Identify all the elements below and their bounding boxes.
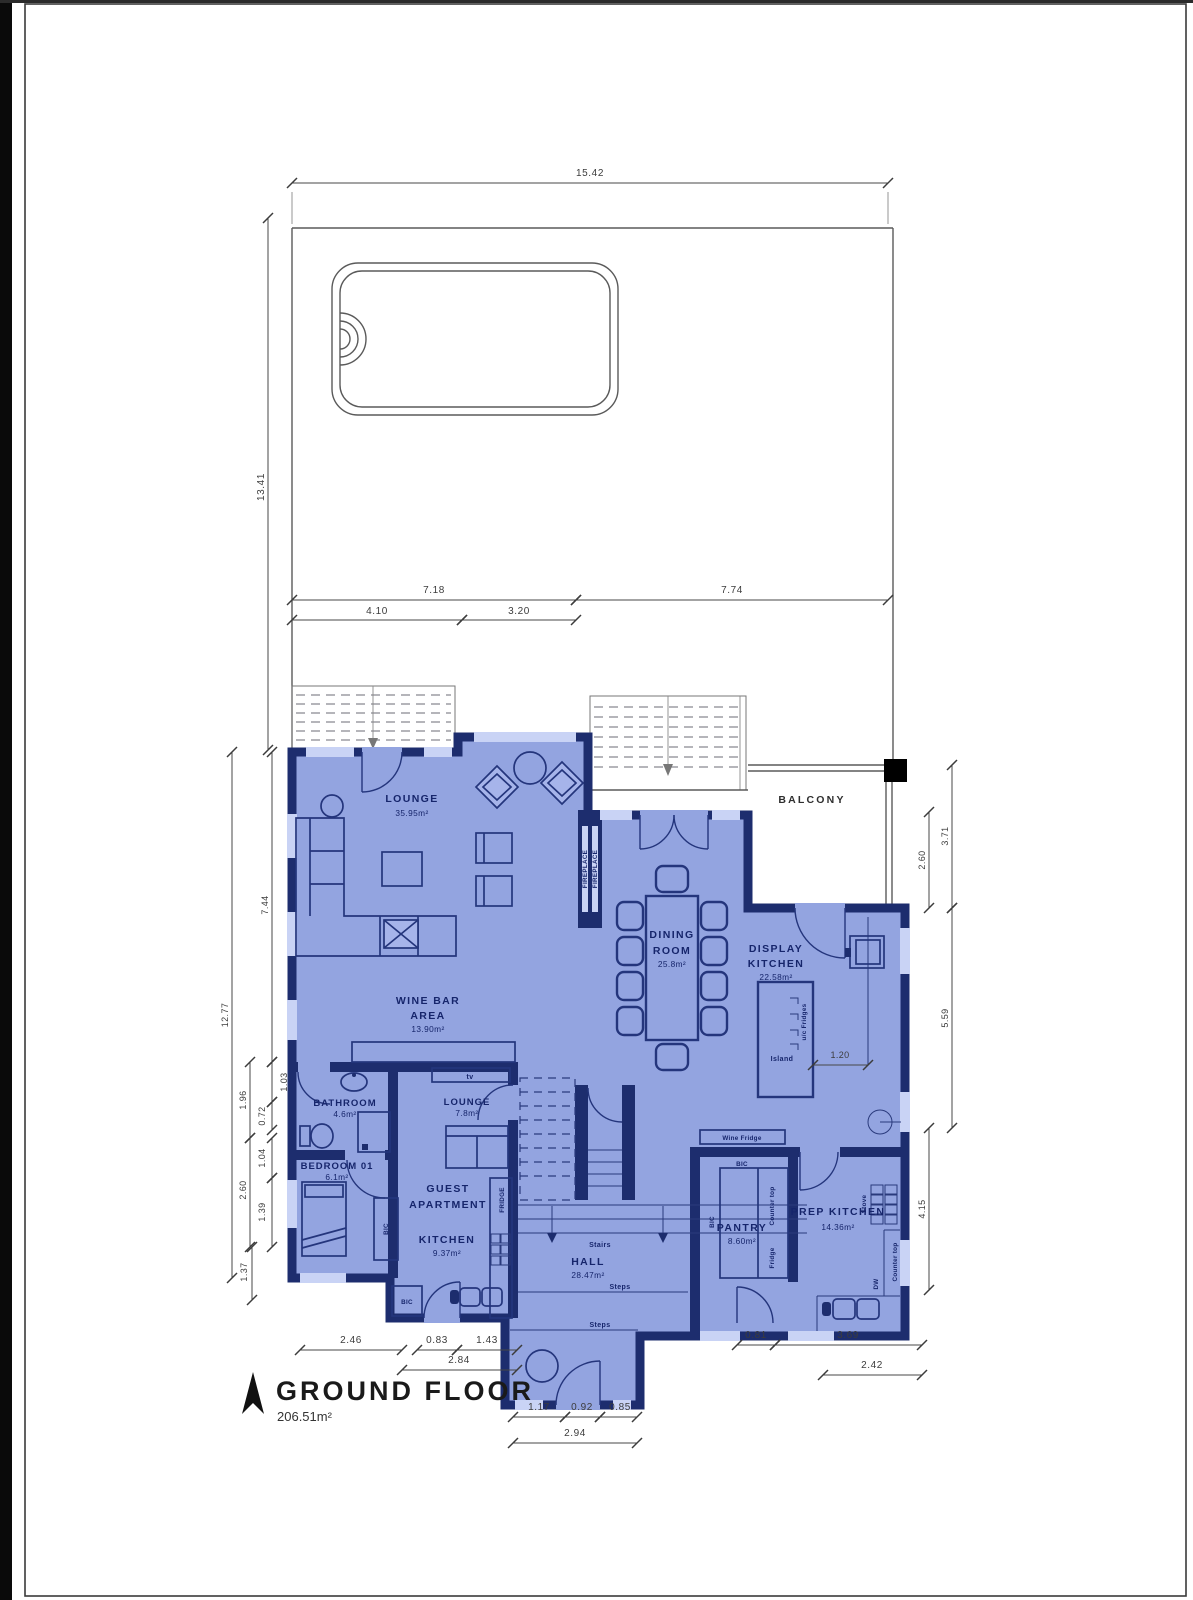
stair-wall-right <box>622 1085 635 1200</box>
display-kitchen-label: DISPLAY <box>749 943 803 955</box>
bic-label: BIC <box>736 1161 748 1168</box>
dim-right-1: 3.71 <box>940 826 950 845</box>
tv-label: tv <box>466 1074 473 1081</box>
pantry-label: PANTRY <box>717 1222 767 1234</box>
bedroom-label: BEDROOM 01 <box>301 1161 374 1172</box>
dim-mid-3: 4.10 <box>366 606 388 617</box>
dim-site-height: 13.41 <box>256 473 267 501</box>
dim-mid-1: 7.18 <box>423 585 445 596</box>
balcony-label: BALCONY <box>778 794 845 806</box>
dim-island: 1.20 <box>830 1050 849 1060</box>
floor-plan-sheet: BALCONY <box>0 0 1193 1600</box>
prep-kitchen-area: 14.36m² <box>821 1222 854 1232</box>
bic-label: BIC <box>383 1223 390 1235</box>
display-kitchen-area: 22.58m² <box>759 972 792 982</box>
dim-bl-3: 1.43 <box>476 1335 498 1346</box>
island-label: Island <box>771 1056 794 1063</box>
dim-bl-2: 0.83 <box>426 1335 448 1346</box>
counter-top-label: Counter top <box>769 1187 776 1226</box>
uc-fridges-label: u/c Fridges <box>801 1003 808 1040</box>
guest-kitchen-area: 9.37m² <box>433 1248 461 1258</box>
dim-left-1: 7.44 <box>260 895 270 914</box>
stair-wall-left <box>575 1085 588 1200</box>
guest-kitchen-label: KITCHEN <box>419 1234 475 1246</box>
dw-label: DW <box>873 1278 880 1289</box>
bic-label: BIC <box>709 1216 716 1228</box>
window <box>306 747 354 757</box>
dim-br-2: 3.69 <box>837 1330 859 1341</box>
dim-br-3: 2.42 <box>861 1360 883 1371</box>
fridge-label: FRIDGE <box>499 1187 506 1213</box>
dim-left-5: 0.72 <box>257 1106 267 1125</box>
window <box>424 747 452 757</box>
lounge-area: 35.95m² <box>395 808 428 818</box>
dining-area: 25.8m² <box>658 959 686 969</box>
pantry-area: 8.60m² <box>728 1236 756 1246</box>
window <box>900 1092 910 1132</box>
balcony-column <box>884 759 907 782</box>
dim-right-4: 4.15 <box>917 1199 927 1218</box>
bic-label: BIC <box>401 1299 413 1306</box>
dim-right-3: 5.59 <box>940 1008 950 1027</box>
lounge-label: LOUNGE <box>385 793 438 805</box>
pantry-wall-left <box>690 1147 700 1336</box>
window <box>900 1240 910 1286</box>
dim-bl-4: 2.84 <box>448 1355 470 1366</box>
hall-area: 28.47m² <box>571 1270 604 1280</box>
wine-bar-area: 13.90m² <box>411 1024 444 1034</box>
fridge-label: Fridge <box>769 1247 776 1268</box>
display-kitchen-label2: KITCHEN <box>748 958 804 970</box>
dim-site-width: 15.42 <box>576 168 604 179</box>
counter-top-label: Counter top <box>892 1243 899 1282</box>
dim-left-8: 1.39 <box>257 1202 267 1221</box>
guest-lounge-label: LOUNGE <box>444 1097 491 1108</box>
dim-left-3: 1.96 <box>238 1090 248 1109</box>
dining-label: DINING <box>649 929 694 941</box>
wine-bar-label2: AREA <box>410 1010 445 1022</box>
steps-label: Steps <box>589 1322 610 1329</box>
shower-drain-icon <box>362 1144 368 1150</box>
window <box>287 1000 297 1040</box>
steps-label: Steps <box>609 1284 630 1291</box>
dim-entry-3: 0.85 <box>609 1402 631 1413</box>
dim-mid-4: 3.20 <box>508 606 530 617</box>
dim-left-4: 1.03 <box>279 1072 289 1091</box>
dim-entry-2: 0.92 <box>571 1402 593 1413</box>
floor-plan-drawing: BALCONY <box>0 0 1193 1600</box>
hall-label: HALL <box>571 1256 605 1268</box>
stairs-label: Stairs <box>589 1242 611 1249</box>
guest-apartment-label: GUEST <box>426 1183 469 1195</box>
bathroom-area: 4.6m² <box>333 1109 356 1119</box>
fireplace-label: FIREPLACE <box>592 850 599 888</box>
bathroom-label: BATHROOM <box>313 1098 376 1109</box>
guest-apartment-label2: APARTMENT <box>409 1199 487 1211</box>
prep-kitchen-label: PREP KITCHEN <box>791 1206 886 1218</box>
dim-right-2: 2.60 <box>917 850 927 869</box>
window <box>287 1180 297 1228</box>
dim-br-1: 0.81 <box>745 1330 767 1341</box>
total-area: 206.51m² <box>277 1409 333 1424</box>
fireplace-label: FIREPLACE <box>582 850 589 888</box>
dim-entry-4: 2.94 <box>564 1428 586 1439</box>
dim-left-7: 2.60 <box>238 1180 248 1199</box>
dim-left-6: 1.04 <box>257 1148 267 1167</box>
window <box>600 810 632 820</box>
window <box>300 1273 346 1283</box>
dim-bl-1: 2.46 <box>340 1335 362 1346</box>
window <box>788 1331 834 1341</box>
window <box>474 732 576 742</box>
page-title: GROUND FLOOR <box>276 1376 534 1406</box>
bedroom-area: 6.1m² <box>325 1172 348 1182</box>
wine-fridge-label: Wine Fridge <box>722 1135 761 1142</box>
dim-mid-2: 7.74 <box>721 585 743 596</box>
wine-bar-label: WINE BAR <box>396 995 460 1007</box>
window <box>700 1331 740 1341</box>
dining-label2: ROOM <box>653 945 691 957</box>
guest-lounge-area: 7.8m² <box>455 1108 478 1118</box>
dim-left-2: 12.77 <box>220 1003 230 1028</box>
window <box>712 810 740 820</box>
window <box>900 928 910 974</box>
dim-left-9: 1.37 <box>239 1262 249 1281</box>
